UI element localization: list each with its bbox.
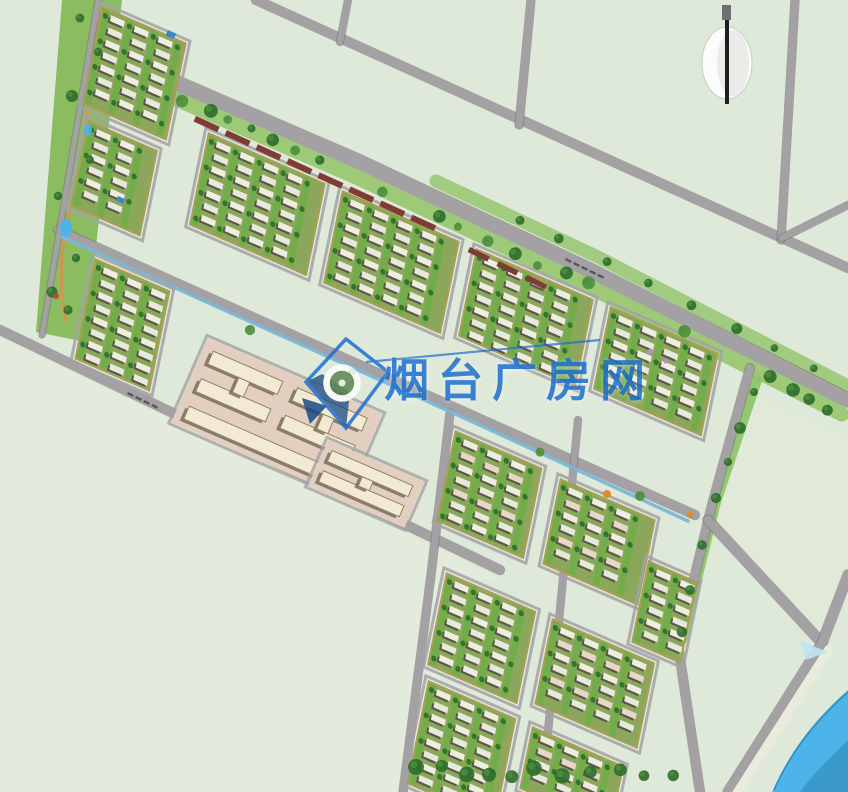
tree-highlight bbox=[268, 135, 274, 141]
park-pond bbox=[84, 124, 92, 136]
tree-highlight bbox=[604, 258, 608, 262]
tree-highlight bbox=[733, 325, 738, 330]
tree-highlight bbox=[461, 769, 468, 776]
tree-highlight bbox=[772, 345, 775, 348]
tree-highlight bbox=[455, 224, 459, 228]
compass-shading bbox=[717, 30, 749, 96]
autumn-tree bbox=[687, 512, 693, 518]
tree-highlight bbox=[206, 106, 212, 112]
tree-highlight bbox=[55, 193, 59, 197]
tree-highlight bbox=[686, 586, 690, 590]
tree-highlight bbox=[435, 212, 441, 218]
tree-highlight bbox=[616, 765, 622, 771]
tree-highlight bbox=[712, 494, 717, 499]
autumn-tree bbox=[603, 490, 611, 498]
tree-highlight bbox=[87, 157, 91, 161]
blossom-tree bbox=[647, 349, 653, 355]
tree-highlight bbox=[537, 449, 541, 453]
tree-highlight bbox=[736, 424, 741, 429]
tree-highlight bbox=[680, 327, 686, 333]
tree-highlight bbox=[316, 157, 320, 161]
tree-highlight bbox=[95, 49, 99, 53]
blossom-tree bbox=[663, 358, 668, 363]
tree-highlight bbox=[586, 767, 592, 773]
tree-highlight bbox=[556, 770, 563, 777]
tree-highlight bbox=[437, 761, 442, 766]
tree-highlight bbox=[725, 459, 729, 463]
tree-highlight bbox=[584, 278, 590, 284]
tree-highlight bbox=[636, 492, 640, 496]
tree-highlight bbox=[349, 369, 352, 372]
tree-highlight bbox=[291, 147, 295, 151]
tree-highlight bbox=[246, 326, 251, 331]
tree-highlight bbox=[805, 395, 810, 400]
tree-highlight bbox=[555, 235, 559, 239]
tree-highlight bbox=[484, 237, 489, 242]
park-pavilion bbox=[53, 293, 59, 299]
tree-highlight bbox=[177, 96, 183, 102]
tree-highlight bbox=[73, 255, 77, 259]
tree-highlight bbox=[688, 302, 692, 306]
tree-highlight bbox=[640, 772, 645, 777]
tree-highlight bbox=[517, 217, 521, 221]
tree-highlight bbox=[484, 770, 490, 776]
masterplan-map: 烟台广房网 bbox=[0, 0, 848, 792]
tree-highlight bbox=[48, 288, 53, 293]
tree-highlight bbox=[698, 541, 702, 545]
tree-highlight bbox=[751, 389, 755, 393]
tree-highlight bbox=[65, 307, 69, 311]
tree-highlight bbox=[811, 365, 814, 368]
tree-highlight bbox=[507, 772, 513, 778]
compass-tail bbox=[722, 5, 731, 20]
tree-highlight bbox=[67, 91, 72, 96]
tree-highlight bbox=[765, 372, 771, 378]
park-pond bbox=[60, 219, 72, 237]
tree-highlight bbox=[788, 385, 794, 391]
tree-highlight bbox=[562, 268, 568, 274]
tree-highlight bbox=[249, 125, 253, 129]
tree-highlight bbox=[77, 15, 81, 19]
tree-highlight bbox=[378, 188, 383, 193]
tree-highlight bbox=[669, 771, 674, 776]
tree-highlight bbox=[645, 280, 649, 284]
tree-highlight bbox=[224, 116, 228, 120]
site-plan-rendering bbox=[0, 0, 848, 792]
compass-needle bbox=[725, 20, 729, 104]
tree-highlight bbox=[678, 628, 683, 633]
tree-highlight bbox=[823, 406, 828, 411]
tree-highlight bbox=[534, 262, 538, 266]
tree-highlight bbox=[410, 761, 417, 768]
tree-highlight bbox=[510, 249, 516, 255]
tree-highlight bbox=[528, 762, 535, 769]
